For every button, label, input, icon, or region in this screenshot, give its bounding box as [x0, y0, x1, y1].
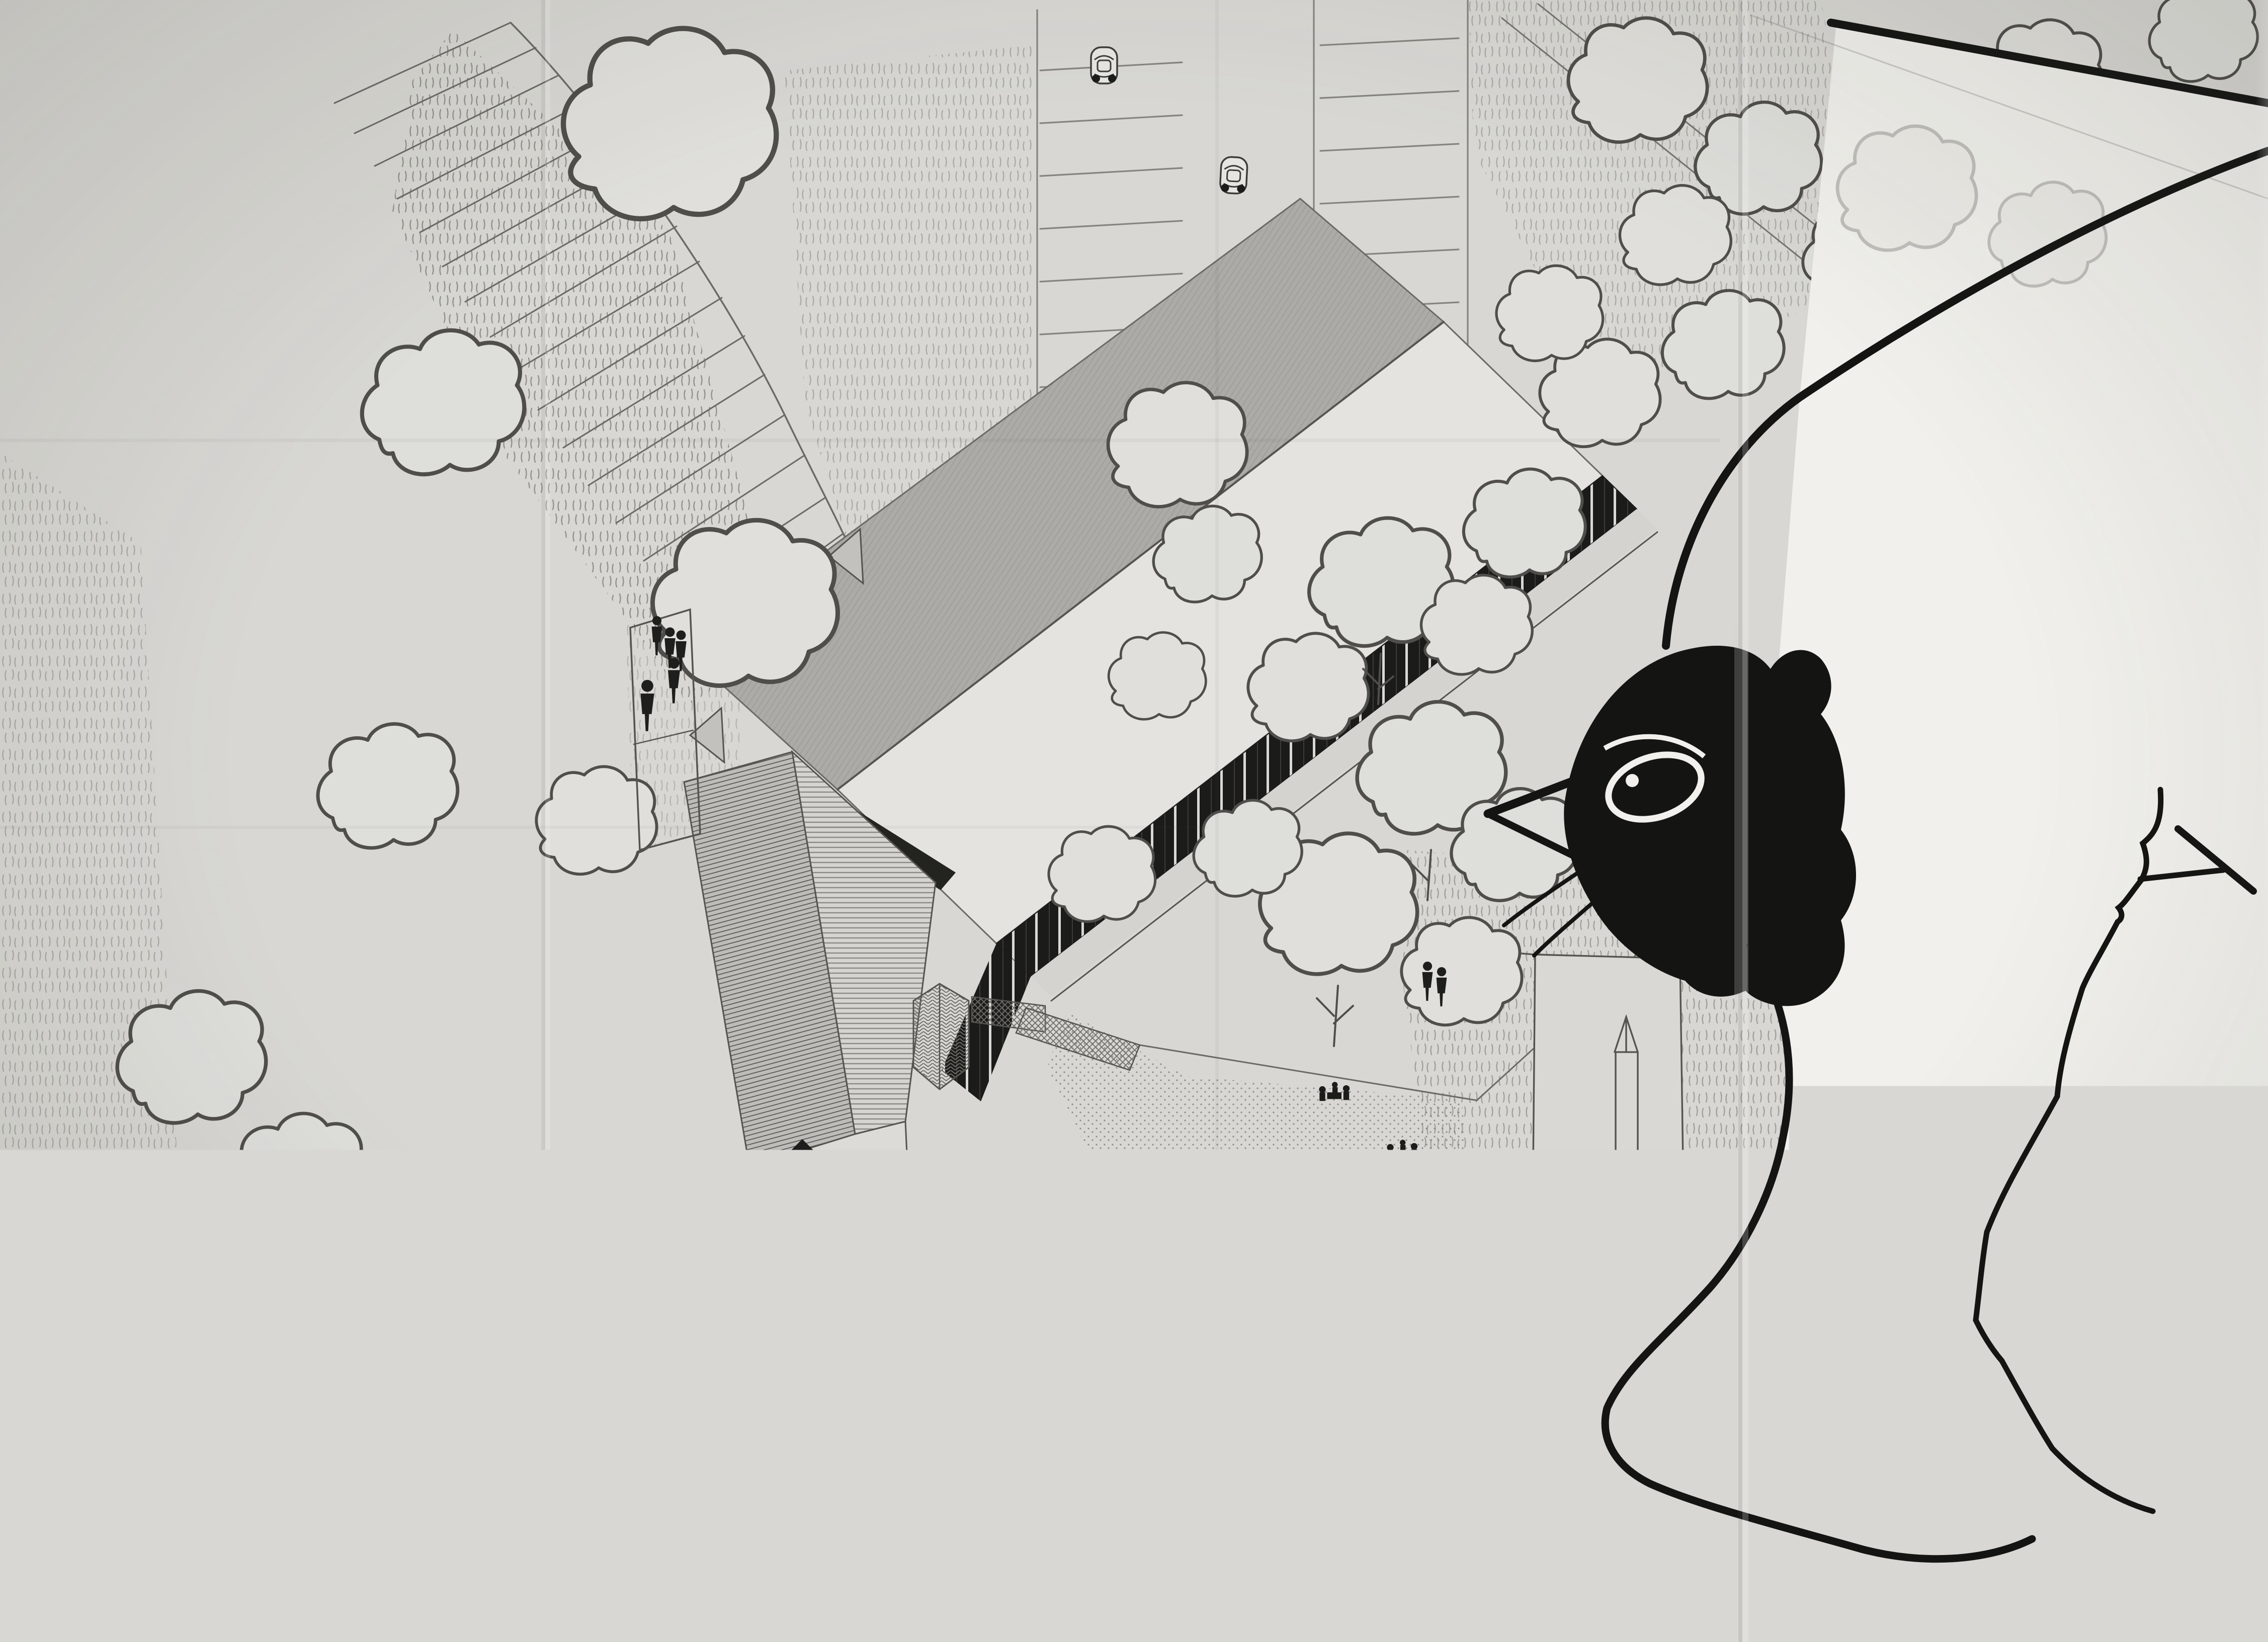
permit-cell: PC 143: [1731, 1480, 1767, 1525]
revision-letter: C: [2171, 1600, 2183, 1612]
project-line1: SIVU _ GYMNASE du LYCEE: [1768, 1479, 2168, 1503]
date-cell: OCTOBRE 87: [2170, 1519, 2262, 1547]
project-line2: VICTOR HUGO: [1768, 1500, 2168, 1524]
revision-row: D: [2171, 1610, 2263, 1623]
revision-table: A B C D: [2170, 1575, 2263, 1622]
permit-number: 143: [1735, 1502, 1767, 1521]
revision-letter: A: [2170, 1577, 2182, 1589]
table-edge-bottom: [0, 1623, 2268, 1642]
photo-vignette: [0, 0, 2268, 1642]
sheet-number: 3: [1732, 1525, 1768, 1593]
tree-logo-icon: [2170, 1476, 2263, 1519]
revision-letter: D: [2171, 1612, 2183, 1623]
title-block: PC 143 SIVU _ GYMNASE du LYCEE VICTOR HU…: [1730, 1474, 2263, 1625]
architect-line: p. pincemaille architecte 3 rue pasteur …: [1732, 1591, 2170, 1626]
site-plan-drawing: [0, 0, 2268, 1642]
permit-label: PC: [1735, 1484, 1767, 1503]
scale-cell: échelle 1/200: [2170, 1547, 2263, 1575]
sheet-title: AXONOMETRIE: [1768, 1522, 2169, 1593]
revision-letter: B: [2171, 1589, 2183, 1600]
project-name-cell: SIVU _ GYMNASE du LYCEE VICTOR HUGO: [1768, 1477, 2168, 1524]
drawing-sheet: PC 143 SIVU _ GYMNASE du LYCEE VICTOR HU…: [0, 0, 2268, 1642]
architect-logo-cell: [2170, 1476, 2263, 1519]
